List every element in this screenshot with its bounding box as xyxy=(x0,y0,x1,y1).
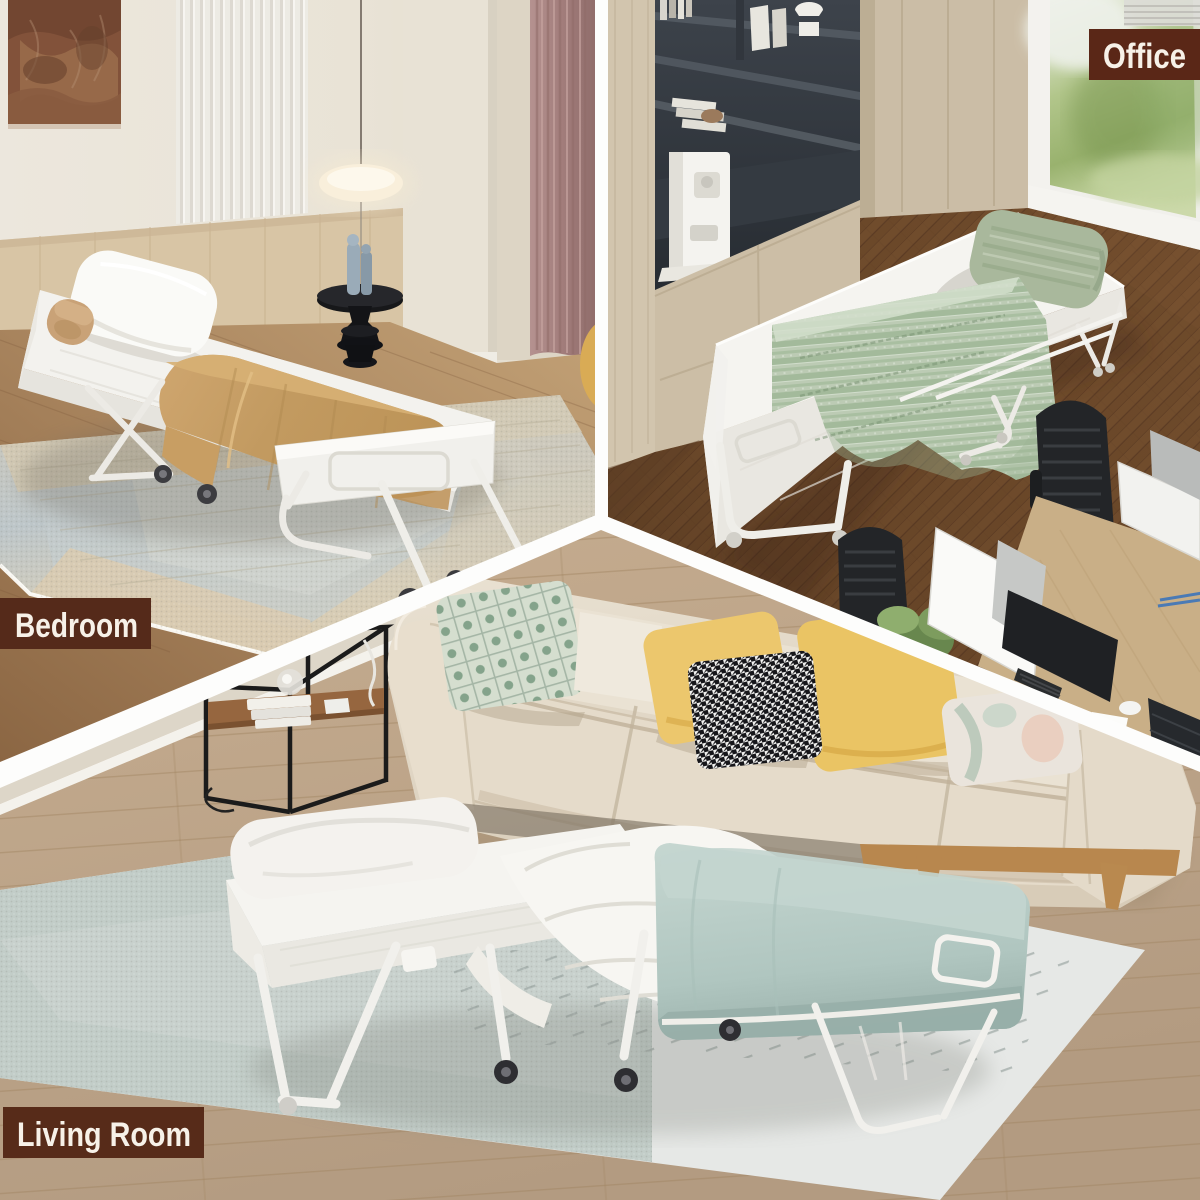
svg-text:Living Room: Living Room xyxy=(17,1116,191,1154)
svg-text:Bedroom: Bedroom xyxy=(15,607,138,645)
svg-text:Office: Office xyxy=(1103,37,1186,76)
